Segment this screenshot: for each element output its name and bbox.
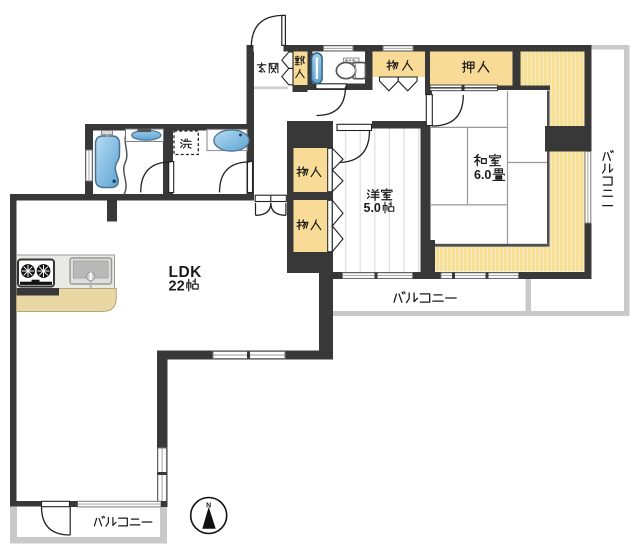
svg-text:22: 22 xyxy=(169,279,185,295)
svg-text:5.0: 5.0 xyxy=(364,201,381,215)
svg-text:6.0: 6.0 xyxy=(474,168,491,182)
svg-text:N: N xyxy=(206,502,211,509)
